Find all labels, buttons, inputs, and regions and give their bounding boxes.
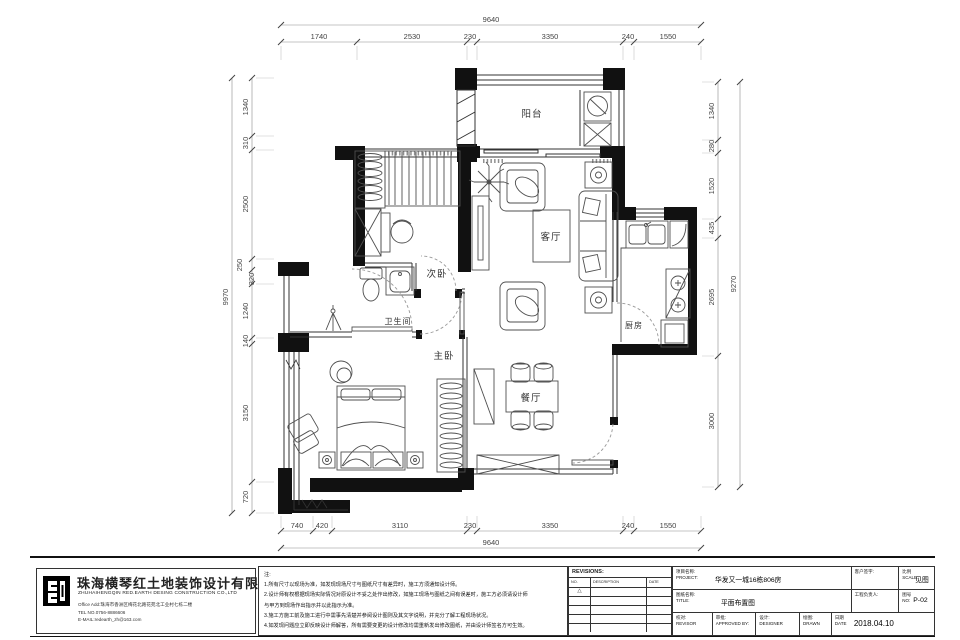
drawing-no-cell: 图号NO: P-02 [899,590,934,612]
company-address: Office Add:珠海市香洲区梅花北路花苑北工业村七栋二楼 [78,602,192,608]
svg-text:1340: 1340 [707,103,716,120]
project-cell: 项目名称:PROJECT: 华发又一城16栋806房 [673,567,852,589]
svg-text:3150: 3150 [241,405,250,422]
notes-block: 注: 1.所有尺寸以现场为准，如发现现场尺寸与图纸尺寸有差异时，施工方须通知设计… [258,566,568,636]
client-sign-cell: 客户签字: [852,567,900,589]
date-cell: 日期DATE 2018.04.10 [832,613,934,635]
note-line: 与甲方到现场作出指示并以此指示为准。 [264,601,562,611]
master-wardrobe [437,379,465,472]
bath-door-leaf [352,327,412,331]
armchair-top [500,163,545,211]
svg-text:2500: 2500 [241,196,250,213]
svg-text:420: 420 [316,521,329,530]
dim-top-total: 9640 [483,15,500,24]
room-label-balcony: 阳台 [521,108,542,120]
manager-cell: 工程负责人: [852,590,900,612]
walls [278,68,697,514]
tv-cabinet [472,196,489,270]
master-door-arc [420,292,462,334]
svg-text:1240: 1240 [241,303,250,320]
dining-cabinet [474,369,494,424]
svg-text:230: 230 [464,32,477,41]
room-label-living: 客厅 [540,231,561,243]
revision-marker: △ [569,588,591,596]
svg-text:1340: 1340 [241,99,250,116]
note-line: 2.设计师有权根据现场实际情况对原设计不妥之处作出修改，如施工现场与图纸之间有误… [264,590,562,600]
company-name-en: ZHUHAIHENGQIN RED.EARTH DESING CONSTRUCT… [78,591,237,596]
title-cell: 图纸名称:TITLE: 平面布置图 [673,590,852,612]
check-cell: 校对:REVISOR [673,613,713,635]
kitchen-sink [626,221,668,248]
shoe-cabinet [477,455,559,474]
dimension-lines [232,25,740,548]
note-line: 3.施工方施工前及施工进行中需事先清楚并参阅设计图则及其文字说明，并充分了解工程… [264,611,562,621]
titleblock-grid: 项目名称:PROJECT: 华发又一城16栋806房 客户签字: 比例SCALE… [672,566,935,636]
svg-text:2530: 2530 [404,32,421,41]
svg-text:2695: 2695 [707,289,716,306]
svg-text:140: 140 [241,335,250,348]
svg-text:1550: 1550 [660,32,677,41]
svg-text:240: 240 [622,521,635,530]
svg-text:720: 720 [241,491,250,504]
drawing-sheet: 阳台 客厅 次卧 卫生间 主卧 餐厅 厨房 9640 1740 2530 230… [0,0,960,640]
svg-text:3350: 3350 [542,521,559,530]
svg-text:3350: 3350 [542,32,559,41]
company-name-cn: 珠海横琴红土地装饰设计有限公司 [77,573,287,592]
drawing-no-value: P-02 [913,597,927,604]
svg-text:250: 250 [235,259,244,272]
room-label-master: 主卧 [433,350,454,362]
svg-text:3000: 3000 [707,413,716,430]
project-value: 华发又一城16栋806房 [715,574,781,584]
revisions-block: REVISIONS: NO. DESCRIPTION DATE △ [568,566,672,636]
toilet [360,268,382,301]
svg-text:740: 740 [291,521,304,530]
room-label-dining: 餐厅 [520,392,541,404]
design-cell: 设计:DESIGNER [756,613,800,635]
drawn-cell: 绘图:DRAWN [800,613,832,635]
floor-plan: 阳台 客厅 次卧 卫生间 主卧 餐厅 厨房 9640 1740 2530 230… [0,0,960,556]
room-label-bedroom2: 次卧 [426,268,447,280]
scale-value: 见图 [915,574,929,584]
master-chair [287,413,320,455]
entry-door-arc [572,422,613,463]
sheet-separator-line [30,556,935,558]
shower-head [326,305,341,331]
svg-text:3110: 3110 [392,521,408,530]
note-line: 4.如发现问题应立即反映设计师解答，所有需要变更的设计修改均需重新发出修改图纸，… [264,621,562,631]
master-side-table [330,361,352,383]
date-value: 2018.04.10 [854,619,894,628]
svg-text:435: 435 [707,222,716,235]
svg-text:1740: 1740 [311,32,328,41]
company-logo [43,576,70,606]
dim-left-total: 9970 [221,289,230,306]
armchair-bottom [500,282,545,330]
kitchen-fridge [661,320,688,347]
svg-text:230: 230 [464,521,477,530]
side-table-bottom [585,287,612,313]
company-tel: TEL NO.0756-8886606 [78,610,125,615]
side-table-top [585,162,612,188]
notes-title: 注: [264,570,562,580]
svg-text:1550: 1550 [660,521,677,530]
master-door-leaf [460,292,464,334]
svg-text:240: 240 [622,32,635,41]
svg-text:320: 320 [247,273,256,286]
bedroom2-bed [385,151,460,206]
kitchen-corner-cab [670,221,688,248]
title-value: 平面布置图 [721,597,755,607]
revisions-col-desc: DESCRIPTION [591,578,647,587]
room-label-bathroom: 卫生间 [385,316,412,326]
sheet-bottom-line [30,636,935,637]
note-line: 1.所有尺寸以现场为准，如发现现场尺寸与图纸尺寸有差异时，施工方须通知设计师。 [264,580,562,590]
approve-cell: 审批:APPROVED BY: [713,613,757,635]
revisions-col-no: NO. [569,578,591,587]
room-label-kitchen: 厨房 [625,320,643,330]
svg-text:310: 310 [241,137,250,150]
windows-and-partitions [284,75,664,510]
bedroom2-desk-chair [381,213,413,252]
dim-right-total: 9270 [729,276,738,293]
dim-bottom-total: 9640 [483,538,500,547]
revisions-header: REVISIONS: [569,567,671,578]
company-block: 珠海横琴红土地装饰设计有限公司 ZHUHAIHENGQIN RED.EARTH … [36,568,256,634]
scale-cell: 比例SCALE: 见图 [899,567,934,589]
company-email: E-MAIL:redearth_zh@163.com [78,617,141,622]
svg-text:280: 280 [707,140,716,153]
balcony-washer [584,92,611,146]
svg-text:1520: 1520 [707,178,716,195]
bathroom-sink [386,267,414,295]
kitchen-stove [666,269,690,318]
revisions-col-date: DATE [647,578,671,587]
